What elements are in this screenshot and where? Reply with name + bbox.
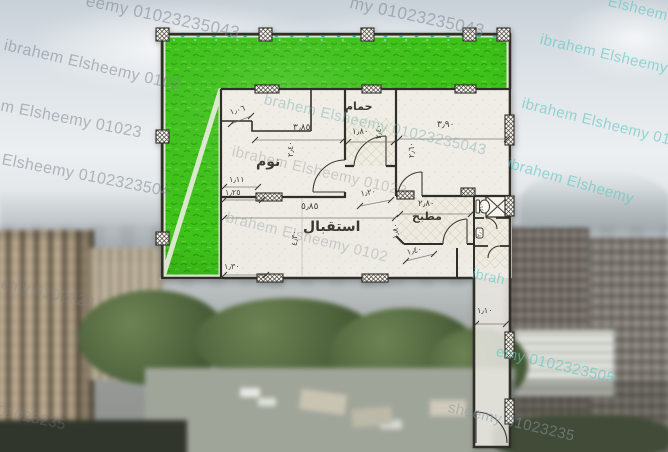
window <box>505 115 514 145</box>
dimension-label: ١٫١٠ <box>477 307 493 315</box>
window <box>362 274 388 282</box>
boundary-column <box>156 130 169 143</box>
boundary-column <box>156 28 169 41</box>
boundary-column <box>497 28 510 41</box>
kitchen-counter <box>461 188 475 196</box>
dimension-label: ٥٫٨٥ <box>301 203 318 212</box>
dimension-label: ١٫٢٥ <box>225 189 241 197</box>
room-label-kitchen: مطبخ <box>412 211 442 222</box>
dimension-label: ١٫٣٠ <box>224 263 240 271</box>
dimension-label: ٢٫٠٠ <box>478 226 484 237</box>
boundary-column <box>156 232 169 245</box>
floorplan-watermarked-image: نوم حمام استقبال مطبخ ١٫٠٦ ٣٫٨٥ ٢٫٤٠ ١٫١… <box>0 0 668 452</box>
dimension-label: ٣٫٩٠ <box>437 121 454 130</box>
boundary-column <box>361 28 374 41</box>
window <box>362 85 381 93</box>
dimension-label: ٣٫٨٥ <box>293 124 310 133</box>
dimension-label: ١٫١١ <box>229 176 245 184</box>
dimension-label: ٢٫٨٠ <box>418 200 434 209</box>
dimension-label: ٠٫٦٠ <box>480 203 486 214</box>
dimension-label: ٢٫٦٠ <box>408 143 416 159</box>
dimension-label: ١٫٨٠ <box>392 224 400 240</box>
boundary-column <box>259 28 272 41</box>
wall-column <box>505 196 514 216</box>
window <box>455 85 476 93</box>
